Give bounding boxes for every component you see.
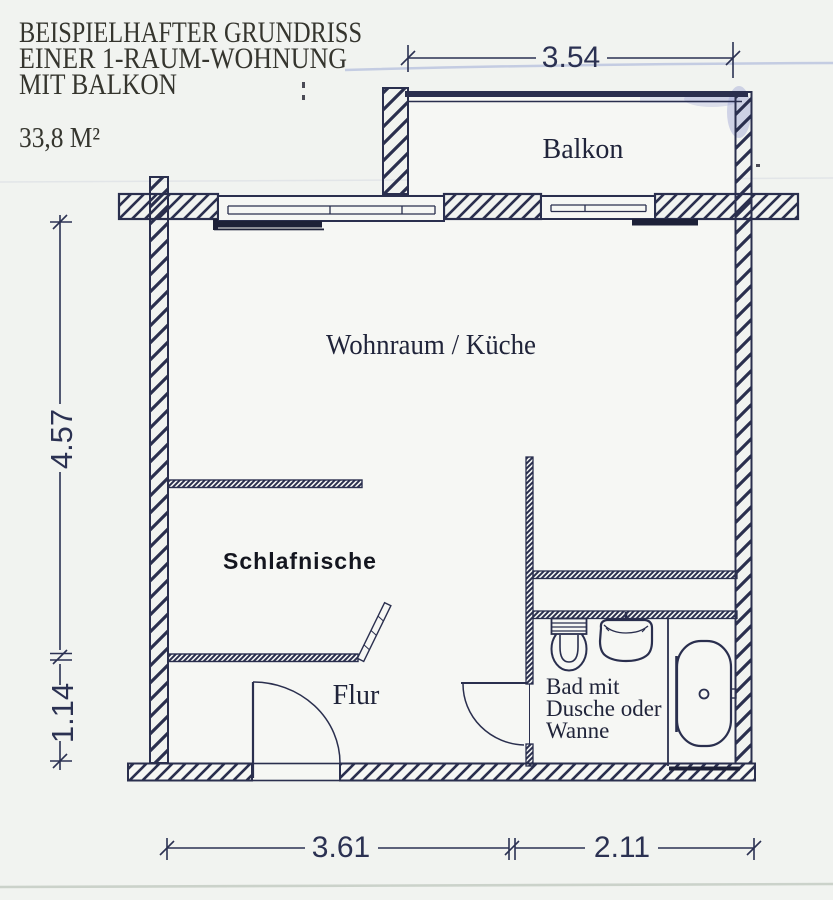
svg-text:3.61: 3.61 xyxy=(312,831,370,864)
svg-text:2.11: 2.11 xyxy=(594,831,650,864)
svg-text:Flur: Flur xyxy=(333,680,380,711)
svg-text:1.14: 1.14 xyxy=(45,683,80,743)
svg-text:4.57: 4.57 xyxy=(44,409,79,469)
svg-text:Wohnraum / Küche: Wohnraum / Küche xyxy=(326,329,536,361)
svg-text:Balkon: Balkon xyxy=(543,134,624,165)
svg-text:33,8 M²: 33,8 M² xyxy=(19,122,100,154)
svg-text:3.54: 3.54 xyxy=(542,41,600,74)
svg-text:Wanne: Wanne xyxy=(546,718,609,743)
svg-text:MIT BALKON: MIT BALKON xyxy=(19,68,177,101)
svg-text:Schlafnische: Schlafnische xyxy=(223,548,377,574)
